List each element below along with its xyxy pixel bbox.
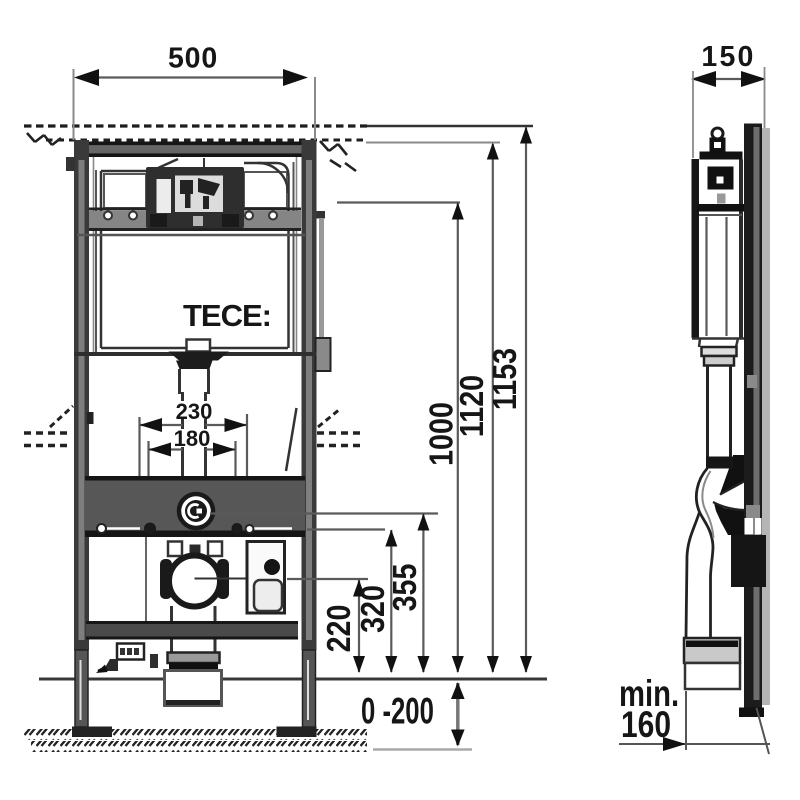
svg-text:230: 230 xyxy=(176,399,213,424)
svg-text:TECE:: TECE: xyxy=(183,298,271,333)
svg-text:180: 180 xyxy=(174,426,211,451)
svg-text:500: 500 xyxy=(168,43,218,75)
svg-text:1120: 1120 xyxy=(453,375,490,437)
svg-text:0 -200: 0 -200 xyxy=(361,690,434,732)
svg-text:355: 355 xyxy=(386,564,423,612)
svg-text:1153: 1153 xyxy=(486,348,523,410)
svg-text:220: 220 xyxy=(320,605,357,653)
svg-text:150: 150 xyxy=(701,41,755,73)
